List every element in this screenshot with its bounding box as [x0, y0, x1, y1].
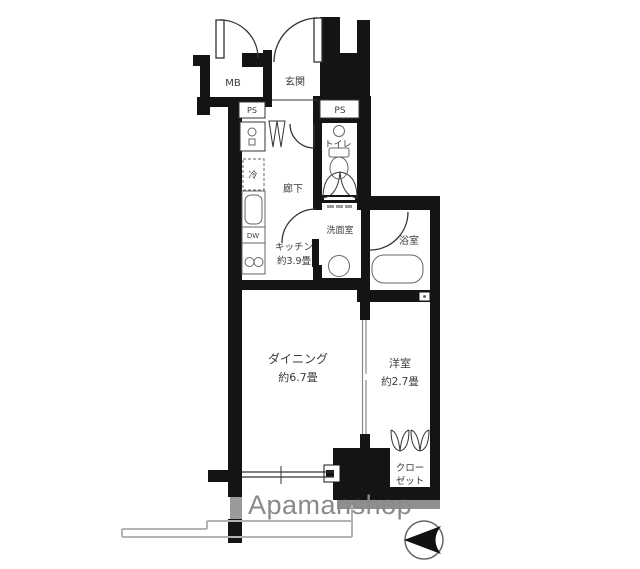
label-ps-left: PS	[247, 106, 257, 115]
floor-plan-drawing: MB 玄関 PS PS トイレ 冷 廊下 DW キッチン 約3.9畳 洗面室 浴…	[0, 0, 640, 569]
label-fridge: 冷	[248, 169, 257, 181]
label-ps-right: PS	[334, 106, 345, 116]
label-dishwasher: DW	[247, 232, 259, 240]
label-kitchen: キッチン	[275, 242, 313, 253]
label-western-room-size: 約2.7畳	[381, 375, 419, 388]
label-closet-line2: ゼット	[396, 475, 425, 487]
label-bathroom: 浴室	[399, 234, 419, 247]
label-western-room: 洋室	[389, 356, 411, 370]
floor-plan: MB 玄関 PS PS トイレ 冷 廊下 DW キッチン 約3.9畳 洗面室 浴…	[0, 0, 640, 569]
washing-machine	[329, 256, 350, 277]
label-mb: MB	[225, 78, 241, 89]
water-heater-box	[240, 122, 265, 151]
fixtures	[239, 100, 423, 283]
label-kitchen-size: 約3.9畳	[277, 255, 312, 267]
label-dining-size: 約6.7畳	[278, 370, 318, 384]
bathtub	[372, 255, 423, 283]
tiny-threshold-marks	[327, 205, 352, 208]
label-hallway: 廊下	[283, 182, 303, 195]
toilet-vent	[334, 126, 345, 137]
label-closet-line1: クロー	[396, 463, 425, 474]
label-genkan: 玄関	[285, 75, 305, 88]
label-washroom: 洗面室	[326, 224, 353, 236]
north-arrow-icon	[404, 521, 443, 559]
apamanshop-logo: Apamanshop	[248, 490, 412, 520]
label-dining: ダイニング	[268, 351, 328, 366]
toilet-bowl	[330, 157, 348, 179]
label-toilet: トイレ	[324, 140, 351, 150]
